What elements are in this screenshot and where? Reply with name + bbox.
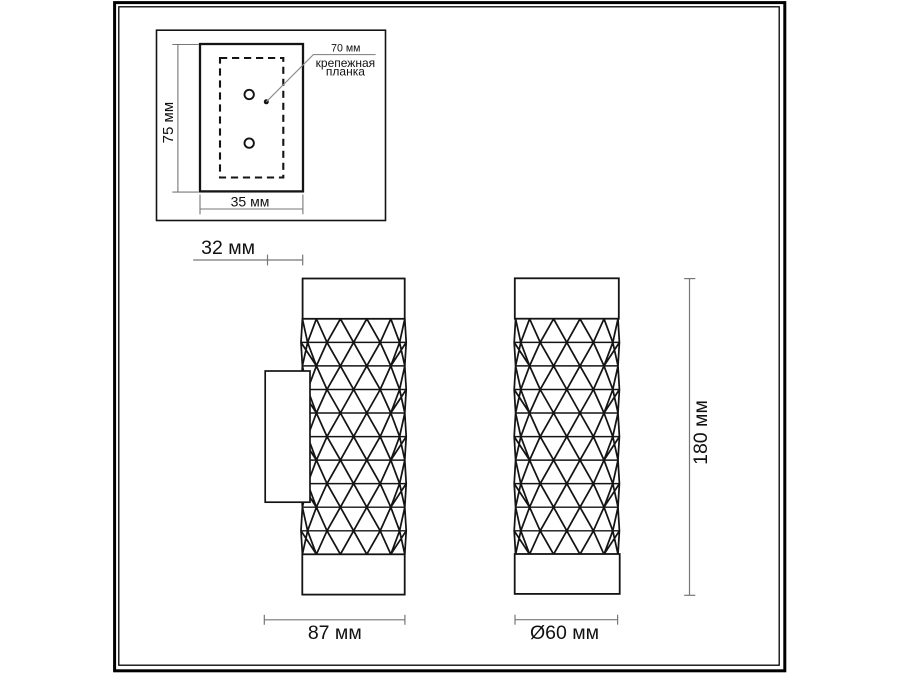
svg-text:Ø60 мм: Ø60 мм bbox=[530, 622, 599, 644]
svg-text:70 мм: 70 мм bbox=[331, 43, 360, 55]
svg-text:87 мм: 87 мм bbox=[308, 622, 362, 644]
svg-text:35 мм: 35 мм bbox=[231, 193, 270, 209]
svg-text:180 мм: 180 мм bbox=[690, 400, 712, 465]
svg-text:75 мм: 75 мм bbox=[160, 102, 177, 143]
svg-text:32 мм: 32 мм bbox=[201, 237, 255, 259]
svg-text:планка: планка bbox=[326, 64, 365, 78]
